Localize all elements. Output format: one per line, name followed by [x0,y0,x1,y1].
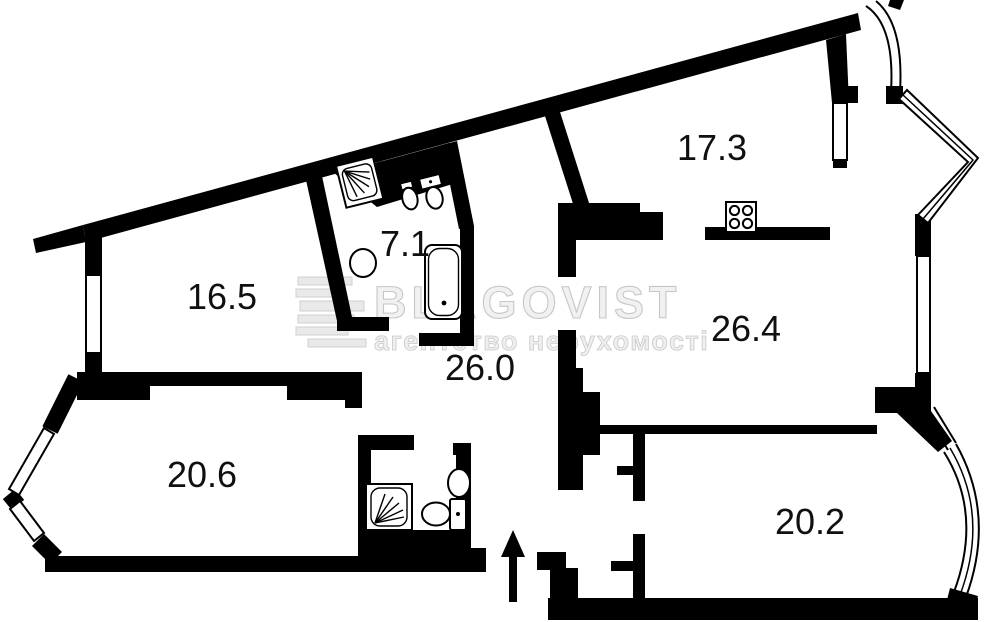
toilet-2-icon [422,499,466,530]
room-label-26-0: 26.0 [445,347,515,388]
wash-basin-icon [350,249,376,277]
floor-plan-page: BLAGOVIST агентство нерухомості [0,0,1000,622]
curved-glazing-top [866,6,891,92]
bay-window-upper [9,428,54,495]
shower-2-icon [366,484,412,530]
wash-basin-2-icon [448,469,470,497]
window-kitchen-inner [833,103,847,160]
room-label-17-3: 17.3 [677,127,747,168]
entrance-arrow-icon [501,530,525,602]
watermark: BLAGOVIST агентство нерухомості [296,277,709,356]
room-label-7-1: 7.1 [380,223,430,264]
window-living [917,256,930,373]
watermark-brand: BLAGOVIST [374,277,682,328]
window-left [86,275,101,353]
room-label-26-4: 26.4 [711,308,781,349]
room-label-20-6: 20.6 [167,454,237,495]
stove-icon [726,202,756,232]
floor-plan-svg: BLAGOVIST агентство нерухомості [0,0,1000,622]
room-label-16-5: 16.5 [187,276,257,317]
bay-window-lower [10,501,44,541]
bay-window-kitchen [899,90,978,223]
bathtub-icon [425,245,462,319]
room-label-20-2: 20.2 [775,501,845,542]
